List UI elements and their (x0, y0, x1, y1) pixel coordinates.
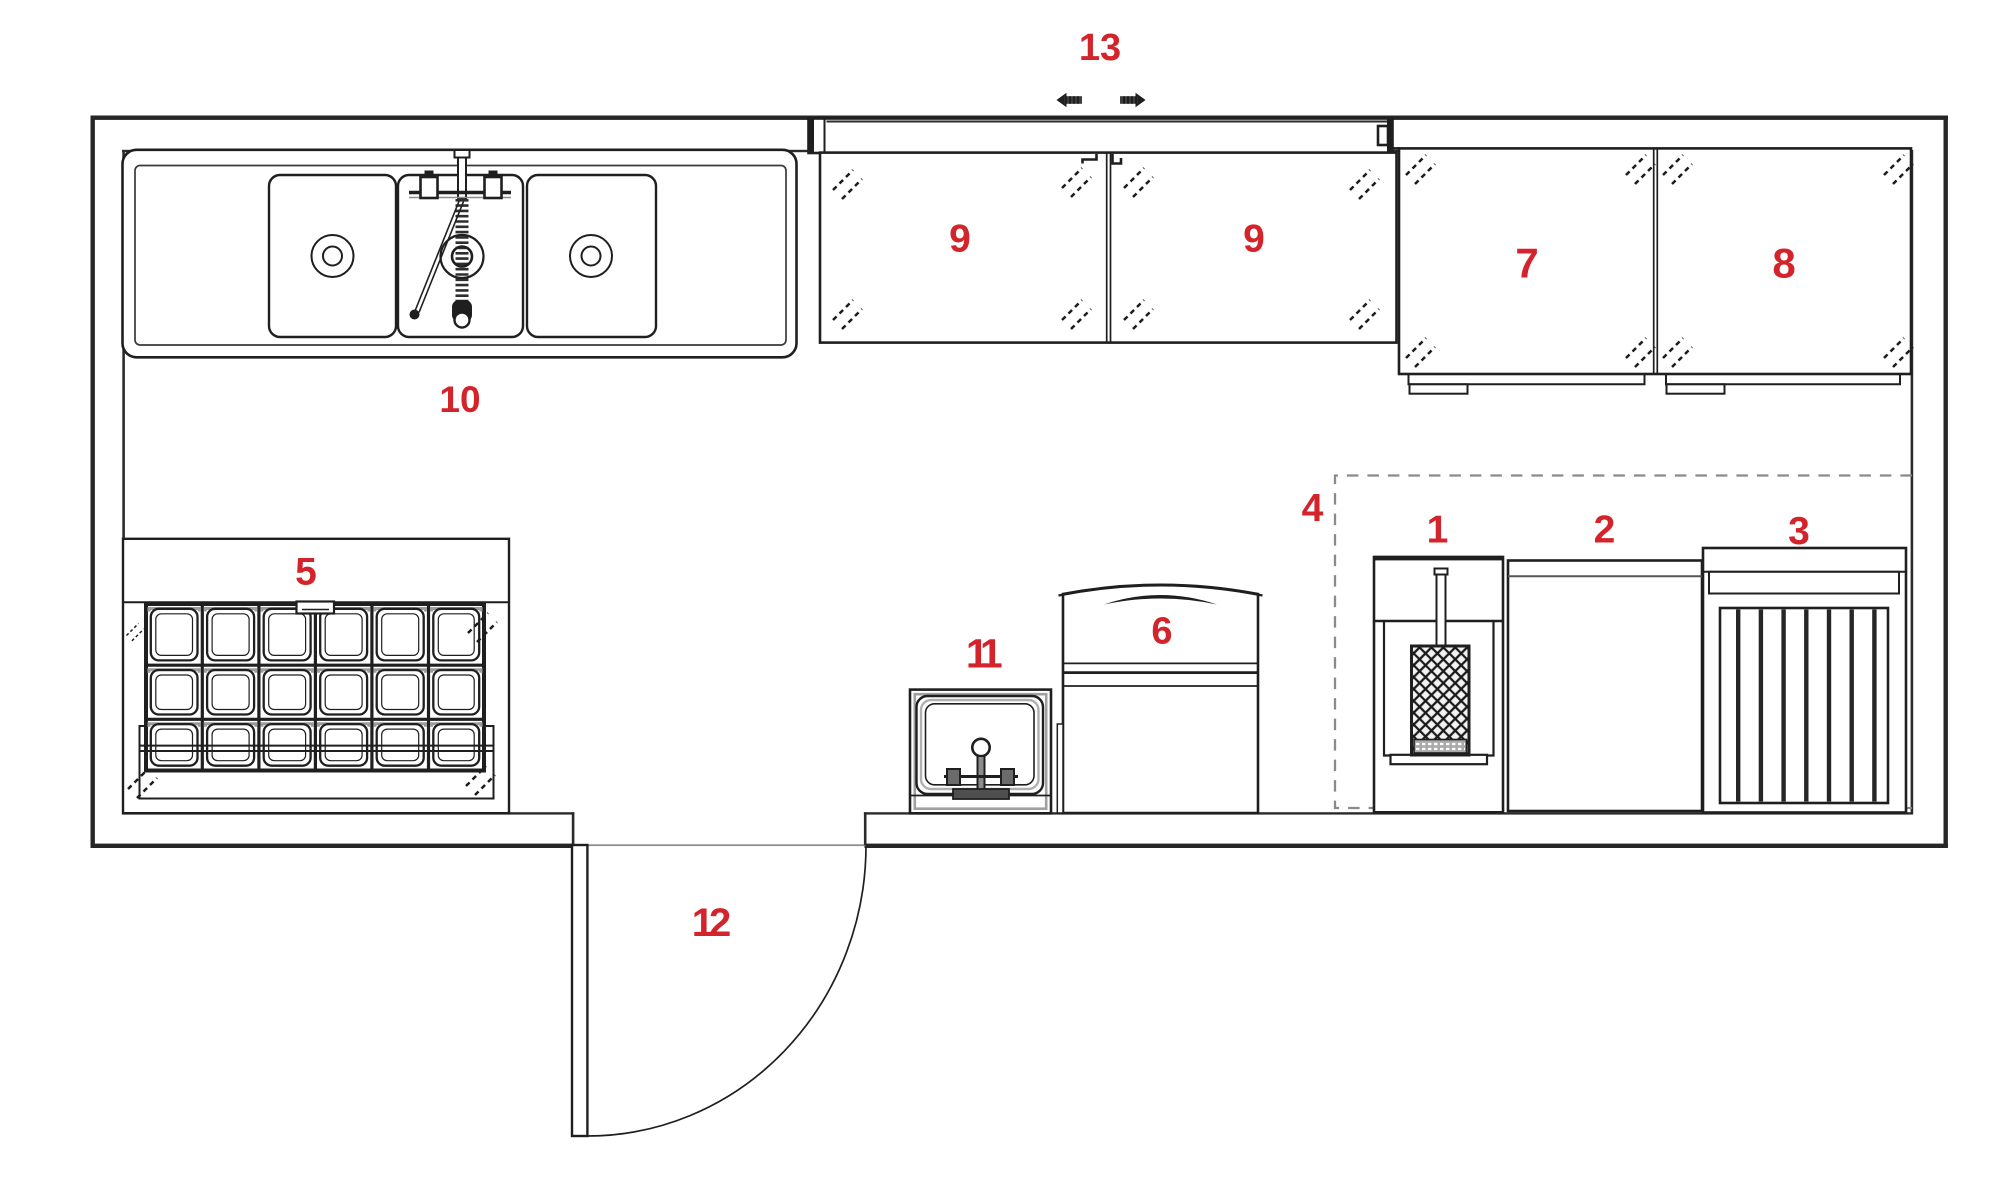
svg-text:13: 13 (1079, 27, 1121, 69)
svg-text:6: 6 (1151, 611, 1172, 653)
svg-text:8: 8 (1772, 240, 1795, 287)
svg-text:2: 2 (1594, 509, 1616, 552)
svg-text:12: 12 (692, 901, 730, 945)
svg-text:9: 9 (949, 218, 971, 261)
svg-text:4: 4 (1302, 487, 1324, 530)
svg-text:9: 9 (1243, 218, 1265, 261)
svg-text:10: 10 (439, 379, 480, 420)
svg-text:5: 5 (295, 551, 317, 594)
svg-text:1: 1 (1427, 509, 1449, 552)
svg-text:7: 7 (1515, 240, 1538, 287)
svg-text:3: 3 (1788, 510, 1810, 553)
